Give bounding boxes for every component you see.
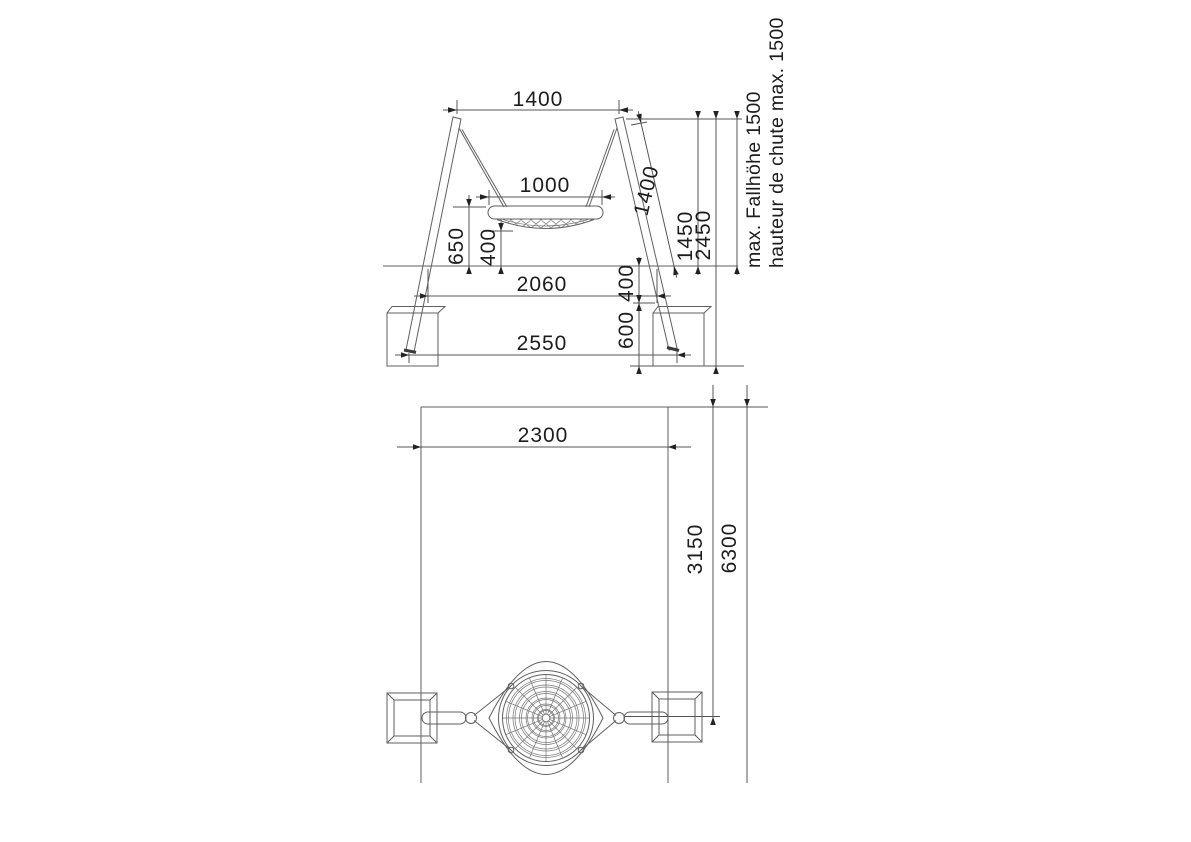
post-left-plan <box>422 712 466 724</box>
basket-plan-view <box>489 662 603 775</box>
dim-area-length: 6300 <box>718 385 750 783</box>
dim-area-length-label: 6300 <box>718 523 741 574</box>
plan-view: 2300 3150 6300 <box>387 385 768 783</box>
dim-post-length-label: 1400 <box>630 163 664 218</box>
dim-overall-height: 2450 <box>692 111 719 374</box>
dim-foundation-chain: 400 600 <box>615 257 744 374</box>
dim-overall-height-label: 2450 <box>692 210 715 261</box>
foundation-left-plan <box>387 693 437 743</box>
dim-post-spacing-feet: 2550 <box>395 332 691 363</box>
foundation-left <box>387 307 445 367</box>
basket-side-view <box>486 206 606 240</box>
dim-post-spacing-feet-label: 2550 <box>517 332 568 355</box>
fall-height-note-de: max. Fallhöhe 1500 <box>743 91 765 268</box>
basket-web-spokes <box>503 675 590 762</box>
pivot-left <box>466 713 477 724</box>
dim-basket-top-height-label: 650 <box>445 227 468 265</box>
dim-fall-height: max. Fallhöhe 1500 hauteur de chute max.… <box>734 17 788 275</box>
dim-axis-distance-label: 3150 <box>684 524 707 575</box>
post-right-plan <box>624 712 668 724</box>
dim-foundation-depth-label: 600 <box>615 311 638 349</box>
dim-basket-width-label: 1000 <box>520 174 571 197</box>
safety-area-boundary <box>421 407 768 783</box>
front-elevation-view: 1400 1000 650 400 <box>383 17 788 374</box>
dim-basket-clearance-label: 400 <box>477 228 500 266</box>
ropes-plan <box>474 686 616 750</box>
dim-area-width-label: 2300 <box>518 424 569 447</box>
dim-area-width: 2300 <box>397 424 691 450</box>
foundation-right <box>653 307 711 367</box>
technical-drawing-page: 1400 1000 650 400 <box>0 0 1191 842</box>
fall-height-note-fr: hauteur de chute max. 1500 <box>766 17 788 268</box>
dim-foundation-top-depth-label: 400 <box>615 264 638 302</box>
swing-technical-drawing: 1400 1000 650 400 <box>0 0 1191 842</box>
dim-axis-distance: 3150 <box>625 385 720 725</box>
dim-top-width-label: 1400 <box>513 88 564 111</box>
dim-post-spacing-ground-label: 2060 <box>517 273 568 296</box>
basket-rim <box>488 206 603 219</box>
dim-top-width: 1400 <box>443 88 633 114</box>
